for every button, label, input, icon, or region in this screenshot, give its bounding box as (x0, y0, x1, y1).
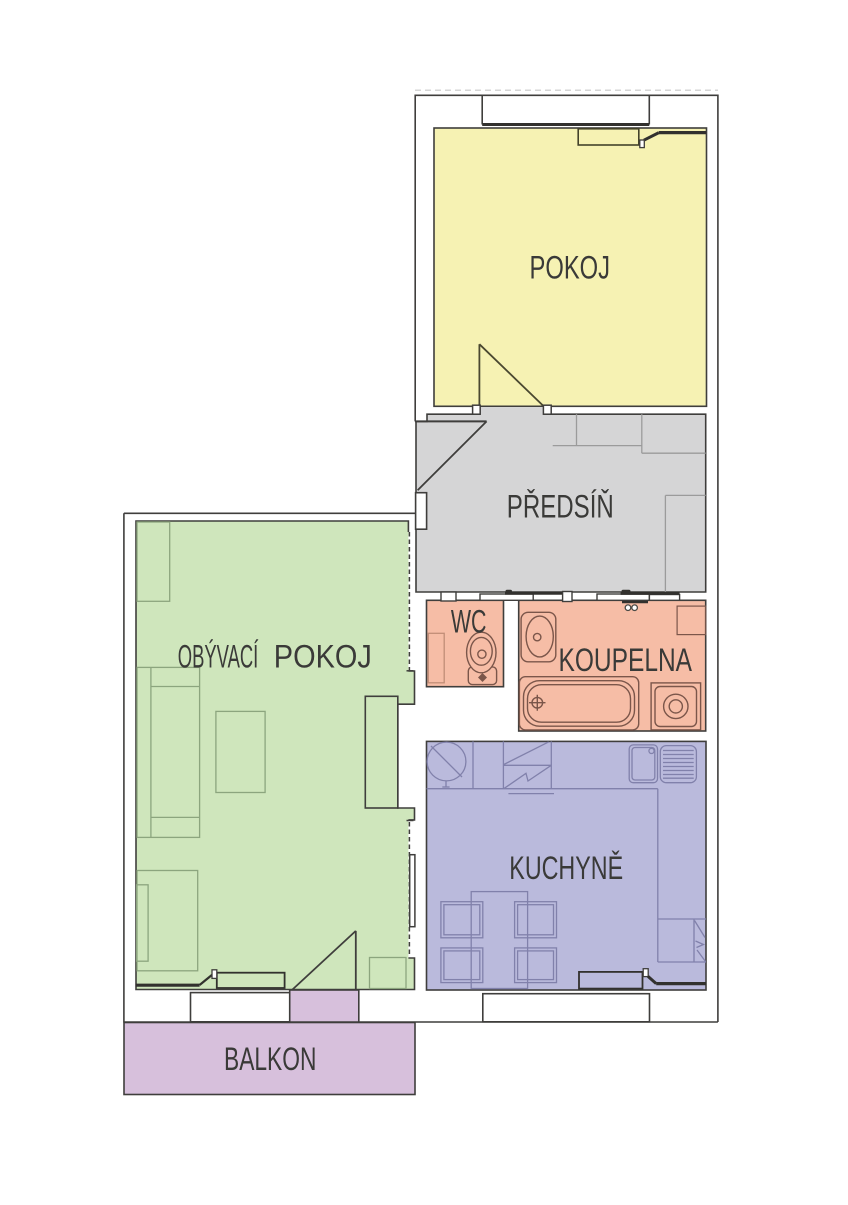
svg-text:OBÝVACÍ: OBÝVACÍ (178, 639, 259, 675)
svg-text:WC: WC (451, 603, 487, 639)
svg-text:BALKON: BALKON (224, 1041, 316, 1077)
svg-text:PŘEDSÍŇ: PŘEDSÍŇ (507, 489, 614, 525)
svg-text:KUCHYNĚ: KUCHYNĚ (509, 850, 623, 886)
svg-text:POKOJ: POKOJ (274, 639, 372, 675)
svg-text:KOUPELNA: KOUPELNA (559, 642, 693, 678)
svg-text:POKOJ: POKOJ (530, 250, 611, 286)
